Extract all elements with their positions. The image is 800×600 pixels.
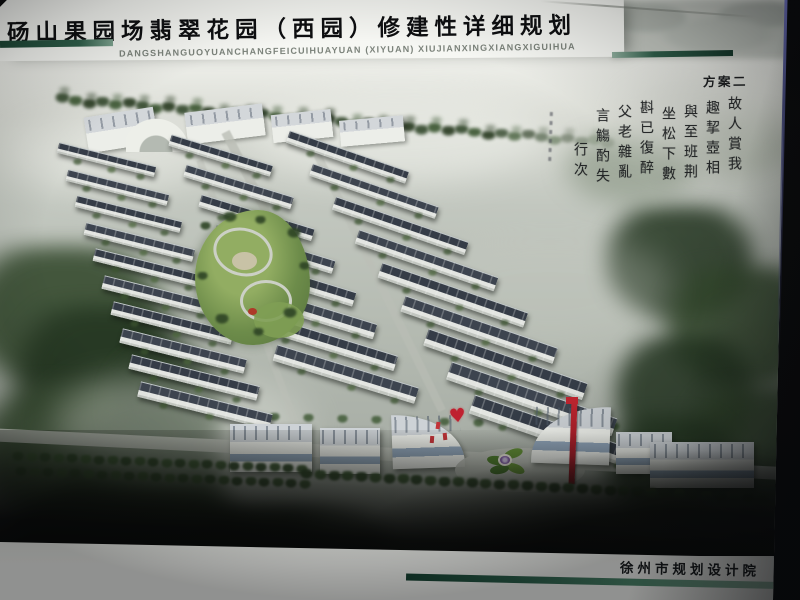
tree: [161, 305, 170, 311]
tree: [439, 418, 450, 426]
tree: [349, 165, 358, 171]
tree: [374, 121, 389, 131]
road: [221, 130, 274, 221]
tree: [329, 353, 338, 359]
housing-row: [57, 142, 157, 177]
tree: [101, 240, 110, 246]
park-path-ring-2: [240, 280, 292, 322]
tree: [352, 114, 363, 121]
housing-row: [137, 381, 273, 429]
tree: [428, 270, 437, 276]
tree: [458, 119, 469, 126]
tree: [334, 117, 349, 127]
tree: [348, 120, 363, 130]
housing-row: [243, 284, 378, 339]
tree: [257, 227, 266, 233]
tree: [528, 356, 537, 362]
tree: [201, 184, 210, 190]
tree: [454, 125, 469, 135]
gateway-left-wing: [84, 107, 159, 154]
tree: [82, 186, 91, 192]
tree: [82, 99, 97, 109]
tree: [455, 305, 464, 311]
planning-board: ♥ 故人賞我 趣挈壺相 與至班荆 坐松下數 斟已復醉 父老雜亂: [0, 0, 800, 600]
tree: [467, 128, 482, 138]
park-tree: [200, 222, 211, 230]
tree: [228, 108, 243, 118]
tree: [331, 301, 340, 307]
tree: [201, 107, 216, 117]
tree: [241, 111, 256, 121]
tree: [325, 108, 336, 115]
tree: [175, 105, 190, 115]
tree: [160, 230, 169, 236]
tree: [150, 277, 159, 283]
heart-icon: ♥: [448, 404, 467, 428]
tree: [494, 129, 509, 139]
tree: [481, 131, 496, 141]
tree: [239, 195, 248, 201]
tree: [232, 397, 241, 403]
tree: [149, 376, 158, 382]
poem-column: 趣挈壺相: [703, 100, 720, 232]
institute-name: 徐州市规划设计院: [620, 556, 760, 579]
tree: [272, 205, 281, 211]
tree: [245, 105, 256, 112]
tree: [575, 422, 586, 430]
tree: [378, 253, 387, 259]
tree: [507, 420, 518, 428]
tree: [441, 126, 456, 136]
tree: [268, 112, 283, 122]
tree: [86, 93, 97, 100]
park-tree: [253, 328, 264, 336]
tree: [538, 127, 549, 134]
north-slab-building-2: [339, 115, 405, 146]
tree: [471, 284, 480, 290]
tree: [303, 414, 314, 422]
tree: [172, 332, 181, 338]
park-tree: [283, 308, 297, 318]
housing-row: [183, 164, 294, 209]
tree: [215, 110, 230, 120]
tree: [108, 100, 123, 110]
tree: [92, 213, 101, 219]
tree: [59, 87, 70, 94]
tree: [135, 101, 150, 111]
tree: [511, 126, 522, 133]
tree: [507, 375, 516, 381]
tree: [292, 237, 301, 243]
tree: [235, 412, 246, 420]
tree: [269, 413, 280, 421]
tree: [354, 219, 363, 225]
tree: [112, 94, 123, 101]
park-plaza: [232, 252, 257, 270]
tree: [405, 417, 416, 425]
tree: [148, 202, 157, 208]
tree: [220, 369, 229, 375]
tree: [281, 338, 290, 344]
tree: [217, 215, 226, 221]
housing-row: [228, 254, 357, 306]
tree: [401, 122, 416, 132]
park-lawn-patch: [254, 302, 304, 338]
tree: [272, 106, 283, 113]
tree: [183, 359, 192, 365]
housing-row: [258, 314, 399, 371]
calligraphy-poem: 故人賞我 趣挈壺相 與至班荆 坐松下數 斟已復醉 父老雜亂 言觴酌失 行次: [558, 92, 742, 232]
park-lawn: [195, 210, 310, 345]
housing-row: [75, 195, 183, 233]
tree: [414, 125, 429, 135]
tree: [252, 173, 261, 179]
red-flag-icon: [436, 422, 441, 429]
housing-row: [286, 130, 409, 183]
tree: [427, 123, 442, 133]
tree: [450, 356, 459, 362]
tree: [249, 277, 258, 283]
housing-row: [92, 248, 208, 289]
tree: [185, 153, 194, 159]
poem-column: 行次: [571, 142, 588, 232]
tree: [402, 235, 411, 241]
housing-row: [198, 194, 315, 241]
tree: [431, 117, 442, 124]
tree: [371, 416, 382, 424]
housing-row: [213, 224, 336, 274]
tree: [68, 96, 83, 106]
tree: [376, 200, 385, 206]
tree: [128, 222, 137, 228]
tree: [188, 104, 203, 114]
park-path-ring-1: [208, 221, 278, 283]
tree: [139, 95, 150, 102]
tree: [122, 98, 137, 108]
tree: [361, 118, 376, 128]
housing-row: [332, 196, 469, 255]
tree: [139, 250, 148, 256]
housing-row: [110, 301, 234, 345]
tree: [107, 167, 116, 173]
housing-row: [423, 328, 588, 400]
tree: [534, 410, 543, 416]
housing-row: [446, 362, 618, 437]
tree: [208, 341, 217, 347]
tree: [130, 321, 139, 327]
tree: [426, 322, 435, 328]
tree: [351, 333, 360, 339]
tree: [95, 97, 110, 107]
tree: [507, 132, 522, 142]
tree: [221, 163, 230, 169]
tree: [159, 403, 168, 409]
poem-column: 與至班荆: [681, 104, 698, 232]
tree: [192, 98, 203, 105]
tree: [347, 385, 356, 391]
park-tree: [287, 228, 301, 238]
tree: [500, 320, 509, 326]
tree: [311, 321, 320, 327]
tree: [443, 249, 452, 255]
aerial-rendering: ♥ 故人賞我 趣挈壺相 與至班荆 坐松下數 斟已復醉 父老雜亂: [0, 56, 800, 556]
housing-row: [66, 169, 170, 205]
tree: [73, 159, 82, 165]
housing-row: [83, 222, 195, 261]
tree: [294, 113, 309, 123]
tree: [233, 246, 242, 252]
park-tree: [215, 314, 229, 324]
tree: [308, 116, 323, 126]
tree: [140, 349, 149, 355]
tree: [541, 421, 552, 429]
park-flower-bed: [248, 308, 257, 315]
photo-bottom-shadow: [0, 430, 800, 556]
tree: [293, 290, 302, 296]
housing-row: [400, 295, 558, 363]
poem-column: 故人賞我: [725, 96, 742, 232]
poem-column: 斟已復醉: [637, 100, 654, 232]
mist-patch: [240, 96, 560, 186]
tree: [111, 267, 120, 273]
title-rule-right: [612, 50, 733, 58]
tree: [402, 288, 411, 294]
tree: [330, 185, 339, 191]
road: [311, 148, 445, 412]
tree: [306, 151, 315, 157]
tree: [55, 93, 70, 103]
tree: [184, 285, 193, 291]
tree: [194, 387, 203, 393]
tree: [172, 258, 181, 264]
tree: [370, 365, 379, 371]
red-banner-top: [566, 397, 578, 404]
tree: [196, 313, 205, 319]
housing-row: [355, 229, 499, 291]
tree: [120, 294, 129, 300]
park-tree: [223, 212, 237, 222]
tree: [521, 130, 536, 140]
tree: [265, 307, 274, 313]
tree: [388, 119, 403, 129]
tree: [275, 258, 284, 264]
gateway-right-wing: [184, 103, 265, 144]
calligraphy-signature: [548, 112, 552, 164]
park-tree: [299, 262, 310, 270]
tree: [481, 340, 490, 346]
tree: [161, 102, 176, 112]
tree: [255, 109, 270, 119]
tree: [405, 116, 416, 123]
park-tree: [255, 216, 266, 224]
housing-row: [128, 354, 260, 400]
forest-left: [0, 246, 170, 396]
tree: [297, 369, 306, 375]
road: [196, 159, 298, 425]
tree: [337, 415, 348, 423]
tree: [534, 133, 549, 143]
poem-column: 言觴酌失: [593, 108, 610, 232]
poem-column: 父老雜亂: [615, 104, 632, 232]
housing-row: [101, 275, 221, 317]
tree: [473, 419, 484, 427]
tree: [414, 213, 423, 219]
tree: [386, 177, 395, 183]
housing-row: [273, 344, 419, 403]
housing-row: [119, 328, 247, 373]
housing-row: [309, 163, 439, 219]
tree: [474, 390, 483, 396]
plan-variant-label: 方案二: [703, 71, 748, 90]
tree: [281, 115, 296, 125]
tree: [311, 269, 320, 275]
tree: [321, 114, 336, 124]
north-slab-building-1: [271, 109, 334, 143]
tree: [219, 104, 230, 111]
park-tree: [197, 272, 208, 280]
tree: [205, 414, 214, 420]
poem-column: 坐松下數: [659, 106, 676, 232]
tree: [148, 104, 163, 114]
tree: [378, 115, 389, 122]
tree: [165, 96, 176, 103]
housing-row: [377, 262, 528, 327]
tree: [136, 174, 145, 180]
tree: [556, 392, 565, 398]
photo-of-planning-board: ♥ 故人賞我 趣挈壺相 與至班荆 坐松下數 斟已復醉 父老雜亂: [0, 0, 800, 600]
tree: [390, 398, 399, 404]
tree: [485, 125, 496, 132]
housing-row: [168, 134, 273, 176]
tree: [298, 107, 309, 114]
gateway-arc-courtyard: [126, 108, 186, 152]
mist-patch: [0, 116, 220, 196]
tree: [117, 195, 126, 201]
mist-patch: [420, 236, 680, 356]
